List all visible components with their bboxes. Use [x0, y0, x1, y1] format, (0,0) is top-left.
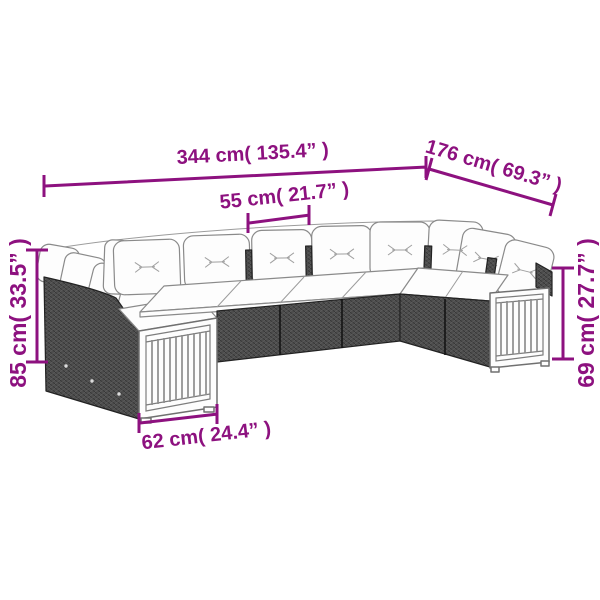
dimension-seat-width-label: 55 cm( 21.7” ) — [219, 178, 351, 213]
right-end-wood-panel — [490, 288, 549, 372]
sofa-diagram-svg: 344 cm( 135.4” ) 176 cm( 69.3” ) 55 cm( … — [0, 0, 600, 600]
right-panel-slats — [501, 299, 537, 356]
dimension-arm-height-label: 69 cm( 27.7” ) — [573, 238, 599, 388]
left-end-wood-panel — [139, 318, 217, 423]
dimension-arm-height-line — [552, 268, 574, 359]
dimension-panel-width-label: 62 cm( 24.4” ) — [140, 418, 272, 455]
dimension-back-height-label: 85 cm( 33.5” ) — [5, 238, 31, 388]
dimension-total-width-label: 344 cm( 135.4” ) — [176, 139, 329, 169]
product-dimension-image: 344 cm( 135.4” ) 176 cm( 69.3” ) 55 cm( … — [0, 0, 600, 600]
